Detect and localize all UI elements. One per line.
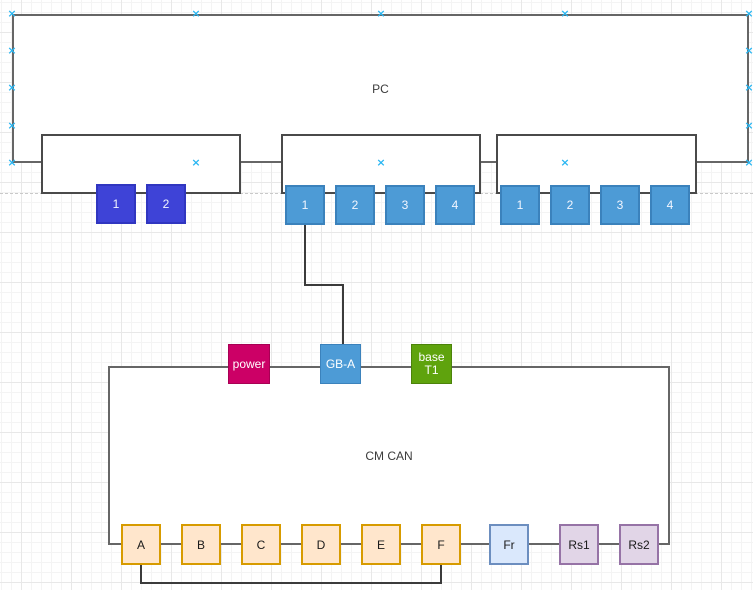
diagram-canvas[interactable]: PC 1 2 1 2 3 4 1 2 3 4 CM CAN power GB-A…	[0, 0, 753, 590]
nic2-port-1[interactable]: 1	[285, 185, 325, 225]
connector-port1-gba-segment[interactable]	[342, 284, 344, 345]
module-d[interactable]: D	[301, 524, 341, 565]
connection-point-icon[interactable]: ×	[7, 8, 16, 19]
nic1-port-2[interactable]: 2	[146, 184, 186, 224]
connection-point-icon[interactable]: ×	[744, 8, 753, 19]
connection-point-icon[interactable]: ×	[744, 120, 753, 131]
power-label: power	[233, 357, 266, 371]
nic3-port-1[interactable]: 1	[500, 185, 540, 225]
module-b[interactable]: B	[181, 524, 221, 565]
connector-port1-gba-segment[interactable]	[304, 225, 306, 285]
module-rs2[interactable]: Rs2	[619, 524, 659, 565]
module-label: B	[197, 538, 205, 552]
module-e[interactable]: E	[361, 524, 401, 565]
module-a[interactable]: A	[121, 524, 161, 565]
module-rs1[interactable]: Rs1	[559, 524, 599, 565]
nic3-port-3[interactable]: 3	[600, 185, 640, 225]
module-label: A	[137, 538, 145, 552]
connection-point-icon[interactable]: ×	[191, 8, 200, 19]
connection-point-icon[interactable]: ×	[560, 157, 569, 168]
nic-box-1[interactable]	[41, 134, 241, 194]
gb-a-module[interactable]: GB-A	[320, 344, 361, 384]
connection-point-icon[interactable]: ×	[560, 8, 569, 19]
port-label: 2	[352, 198, 359, 212]
module-label: F	[437, 538, 444, 552]
pc-label: PC	[372, 82, 389, 96]
connector-a-f-segment[interactable]	[140, 564, 142, 584]
connection-point-icon[interactable]: ×	[744, 45, 753, 56]
connector-a-f-segment[interactable]	[440, 564, 442, 584]
port-label: 2	[163, 197, 170, 211]
port-label: 4	[452, 198, 459, 212]
connection-point-icon[interactable]: ×	[7, 82, 16, 93]
nic2-port-4[interactable]: 4	[435, 185, 475, 225]
cm-can-label: CM CAN	[365, 449, 412, 463]
nic2-port-2[interactable]: 2	[335, 185, 375, 225]
connection-point-icon[interactable]: ×	[744, 157, 753, 168]
connection-point-icon[interactable]: ×	[744, 82, 753, 93]
base-t1-label-line2: T1	[424, 364, 438, 377]
gb-a-label: GB-A	[326, 357, 355, 371]
connection-point-icon[interactable]: ×	[376, 8, 385, 19]
power-module[interactable]: power	[228, 344, 270, 384]
port-label: 1	[302, 198, 309, 212]
port-label: 1	[113, 197, 120, 211]
module-f[interactable]: F	[421, 524, 461, 565]
module-fr[interactable]: Fr	[489, 524, 529, 565]
nic3-port-4[interactable]: 4	[650, 185, 690, 225]
connection-point-icon[interactable]: ×	[191, 157, 200, 168]
cm-can-box[interactable]: CM CAN	[108, 366, 670, 545]
module-label: Rs1	[568, 538, 589, 552]
module-label: Fr	[503, 538, 514, 552]
nic1-port-1[interactable]: 1	[96, 184, 136, 224]
port-label: 3	[617, 198, 624, 212]
base-t1-module[interactable]: base T1	[411, 344, 452, 384]
module-label: C	[257, 538, 266, 552]
connector-port1-gba-segment[interactable]	[304, 284, 344, 286]
port-label: 3	[402, 198, 409, 212]
port-label: 2	[567, 198, 574, 212]
module-label: E	[377, 538, 385, 552]
port-label: 4	[667, 198, 674, 212]
connection-point-icon[interactable]: ×	[7, 157, 16, 168]
module-c[interactable]: C	[241, 524, 281, 565]
nic2-port-3[interactable]: 3	[385, 185, 425, 225]
nic3-port-2[interactable]: 2	[550, 185, 590, 225]
module-label: D	[317, 538, 326, 552]
connection-point-icon[interactable]: ×	[376, 157, 385, 168]
connector-a-f-segment[interactable]	[140, 582, 442, 584]
connection-point-icon[interactable]: ×	[7, 120, 16, 131]
connection-point-icon[interactable]: ×	[7, 45, 16, 56]
module-label: Rs2	[628, 538, 649, 552]
port-label: 1	[517, 198, 524, 212]
